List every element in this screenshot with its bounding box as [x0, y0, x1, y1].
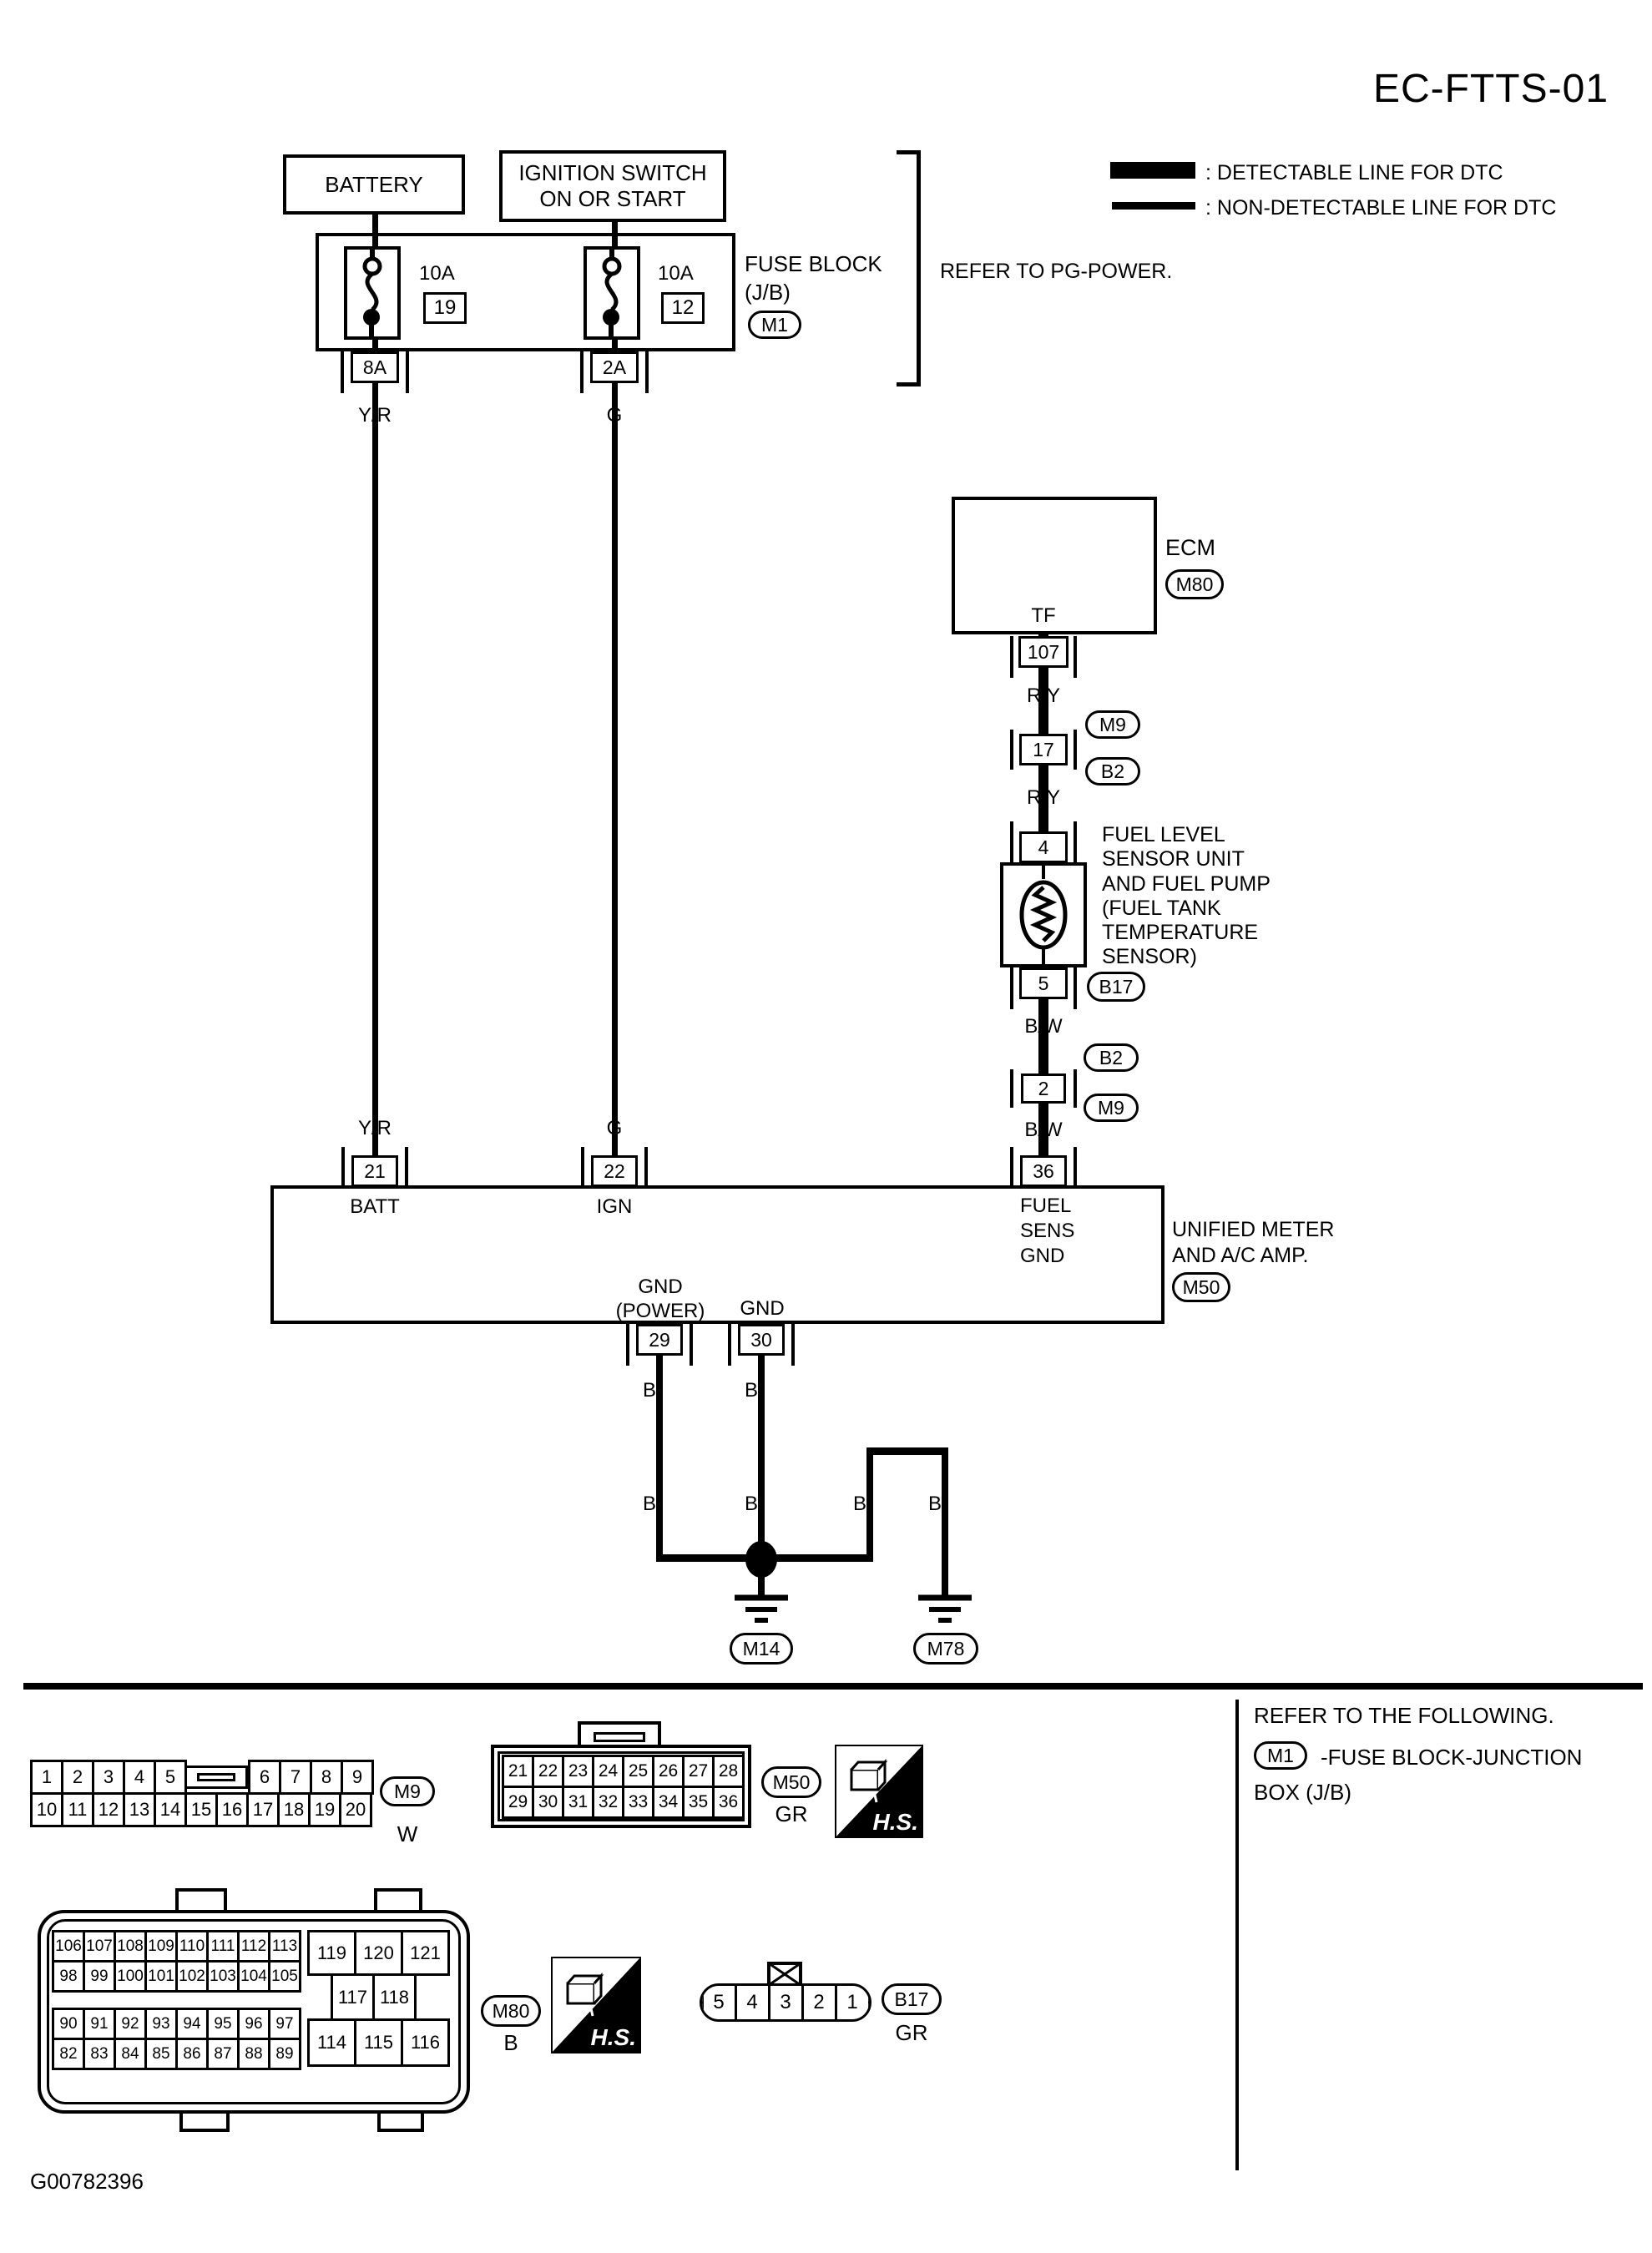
terminal-21-pin: 21	[351, 1155, 398, 1187]
m80-pin-cell: 108	[114, 1930, 147, 1963]
m80-pin-cell: 84	[114, 2038, 147, 2070]
m9-pin-cell: 18	[277, 1792, 311, 1827]
wire-color-bw-2: B/W	[1008, 1119, 1079, 1143]
m9-pin-cell: 15	[184, 1792, 218, 1827]
m80-pin-cell: 92	[114, 2008, 147, 2040]
m50-color-label: GR	[775, 1801, 808, 1827]
m80-pin-cell: 117	[331, 1973, 375, 2021]
m9-key-slot	[184, 1766, 248, 1789]
terminal-2a-pin: 2A	[590, 351, 639, 383]
battery-box: BATTERY	[283, 154, 465, 215]
b-label: B	[745, 1493, 758, 1517]
wire-color-g-top: G	[580, 404, 649, 428]
m80-blockA-row1: 106107108109110111112113	[52, 1930, 301, 1963]
m80-pin-cell: 82	[52, 2038, 85, 2070]
badge-b17: B17	[1087, 972, 1145, 1002]
g-label: G	[607, 1117, 623, 1141]
fuel-sensor-box	[1000, 862, 1087, 967]
m80-right-row1: 119120121	[307, 1930, 450, 1976]
terminal-4-pin: 4	[1019, 831, 1068, 863]
terminal-2-label: 2	[1038, 1078, 1049, 1100]
loop-top-wire	[866, 1447, 948, 1455]
m50-pin-cell: 24	[592, 1755, 624, 1788]
hs-label: H.S.	[591, 2024, 636, 2050]
yr-label: Y/R	[358, 404, 392, 428]
resistor-icon	[1003, 866, 1084, 964]
loop-right-wire	[942, 1447, 948, 1599]
m9-pin-cell: 20	[339, 1792, 372, 1827]
m80-pin-cell: 103	[206, 1960, 240, 1993]
m14-ground-icon	[731, 1593, 791, 1629]
m80-pin-cell: 98	[52, 1960, 85, 1993]
m9-pin-cell: 13	[123, 1792, 156, 1827]
m80-blockA-row2: 9899100101102103104105	[52, 1960, 301, 1993]
terminal-8a-label: 8A	[363, 356, 386, 379]
b-label: B	[853, 1493, 866, 1517]
m80-blockB-row1: 9091929394959697	[52, 2008, 301, 2040]
footer-m1-text: -FUSE BLOCK-JUNCTION	[1321, 1745, 1582, 1771]
m50-tab-slot	[594, 1732, 645, 1742]
terminal-30-pin: 30	[738, 1324, 785, 1356]
footer-m1-text2: BOX (J/B)	[1254, 1780, 1351, 1806]
ground-badge-m14: M14	[730, 1633, 793, 1664]
m9-view-color: W	[374, 1821, 441, 1847]
b17-badge-label: B17	[1099, 976, 1134, 998]
m50-pin-cell: 23	[562, 1755, 594, 1788]
ry-label: R/Y	[1027, 684, 1060, 709]
m9-pin-cell: 11	[61, 1792, 94, 1827]
meter-gnd-name: GND	[730, 1297, 795, 1321]
terminal-2a-label: 2A	[603, 356, 626, 379]
terminal-21-label: 21	[364, 1160, 386, 1183]
m78-badge-label: M78	[927, 1638, 965, 1660]
m80-pin-cell: 111	[206, 1930, 240, 1963]
legend-nondetectable-line-sample	[1112, 202, 1195, 210]
b-label: B	[745, 1379, 758, 1403]
m9-pin-cell: 17	[246, 1792, 280, 1827]
terminal-30-label: 30	[750, 1329, 772, 1351]
b17-pin-cell: 2	[801, 1986, 837, 2019]
ignition-switch-box: IGNITION SWITCH ON OR START	[499, 150, 726, 222]
b17-view-color: GR	[882, 2020, 942, 2046]
m80-pin-cell: 109	[144, 1930, 178, 1963]
b17-pin-cell: 5	[701, 1986, 737, 2019]
m9-color-label: W	[397, 1821, 418, 1847]
m9-pin-cell: 14	[154, 1792, 187, 1827]
fuse-19-amp: 10A	[419, 262, 455, 286]
m50-pin-cell: 36	[712, 1786, 745, 1819]
b-label-2: B	[728, 1379, 775, 1403]
legend-nondetectable-label: : NON-DETECTABLE LINE FOR DTC	[1205, 195, 1556, 220]
footer-badge-m1: M1	[1254, 1741, 1307, 1770]
m9-badge-label: M9	[1098, 1097, 1124, 1119]
m9-pin-cell: 10	[30, 1792, 63, 1827]
m9-pin-cell: 4	[123, 1760, 156, 1795]
m1-badge-label: M1	[761, 314, 788, 336]
terminal-8a-pin: 8A	[351, 351, 399, 383]
m50-pin-cell: 32	[592, 1786, 624, 1819]
footer-separator-line	[23, 1683, 1643, 1690]
battery-label: BATTERY	[325, 172, 423, 198]
fuse-icon	[587, 250, 637, 336]
m50-badge-label: M50	[773, 1771, 811, 1794]
terminal-17-label: 17	[1033, 739, 1054, 761]
m78-ground-icon	[915, 1593, 975, 1629]
fuel-sensor-label: FUEL LEVEL SENSOR UNIT AND FUEL PUMP (FU…	[1102, 823, 1271, 970]
legend-detectable-line-sample	[1110, 162, 1195, 179]
m50-pin-cell: 26	[652, 1755, 685, 1788]
m80-pin-cell: 93	[144, 2008, 178, 2040]
terminal-4-label: 4	[1038, 836, 1049, 859]
terminal-29-pin: 29	[636, 1324, 683, 1356]
fuse-19-symbol-box	[344, 246, 401, 340]
hs-icon-1: H.S.	[835, 1745, 923, 1838]
meter-fuel-sens-gnd-name: FUEL SENS GND	[1020, 1194, 1074, 1269]
b17-pin-cell: 4	[735, 1986, 770, 2019]
m9-pin-cell: 1	[30, 1760, 63, 1795]
b17-color-label: GR	[896, 2020, 928, 2046]
m80-color-label: B	[503, 2030, 518, 2056]
m50-pin-cell: 25	[622, 1755, 654, 1788]
badge-b2-upper: B2	[1085, 757, 1140, 786]
m50-view-badge: M50	[761, 1766, 821, 1798]
m50-pin-cell: 33	[622, 1786, 654, 1819]
wire-color-bw-1: B/W	[1008, 1015, 1079, 1039]
ecm-pin-name-tf: TF	[1013, 604, 1074, 629]
m80-pin-cell: 118	[372, 1973, 417, 2021]
fuse-icon	[347, 250, 397, 336]
b17-connector-outline: 54321	[700, 1983, 871, 2022]
terminal-36: 36	[1010, 1147, 1077, 1187]
m50-pin-cell: 21	[502, 1755, 534, 1788]
terminal-2a: 2A	[580, 351, 649, 393]
m80-pin-cell: 88	[237, 2038, 270, 2070]
terminal-5-pin: 5	[1019, 967, 1068, 999]
m80-pin-cell: 106	[52, 1930, 85, 1963]
b-label-3: B	[626, 1493, 673, 1517]
ignition-switch-label: IGNITION SWITCH ON OR START	[518, 160, 706, 212]
b-label: B	[643, 1493, 656, 1517]
m50-pin-cell: 34	[652, 1786, 685, 1819]
gnd-label: GND	[740, 1297, 784, 1321]
terminal-107: 107	[1010, 636, 1077, 678]
b-label-5: B	[836, 1493, 883, 1517]
fuse-block-badge-m1: M1	[748, 311, 801, 339]
m50-connector-row1: 2122232425262728	[502, 1755, 745, 1788]
m80-pin-cell: 96	[237, 2008, 270, 2040]
terminal-21: 21	[341, 1147, 408, 1187]
ecm-label: ECM	[1165, 534, 1215, 561]
m80-pin-cell: 83	[83, 2038, 116, 2070]
m80-view-color: B	[481, 2030, 541, 2056]
hs-label: H.S.	[873, 1809, 918, 1835]
ecm-badge-m80: M80	[1165, 569, 1224, 599]
terminal-22: 22	[581, 1147, 648, 1187]
yr-label: Y/R	[358, 1117, 392, 1141]
b2-badge-label: B2	[1099, 1047, 1123, 1069]
m50-pin-cell: 29	[502, 1786, 534, 1819]
m50-pin-cell: 31	[562, 1786, 594, 1819]
legend-detectable-label: : DETECTABLE LINE FOR DTC	[1205, 160, 1503, 185]
m14-badge-label: M14	[743, 1638, 781, 1660]
m80-pin-cell: 120	[354, 1930, 403, 1976]
m80-pin-cell: 86	[175, 2038, 209, 2070]
m80-pin-cell: 113	[268, 1930, 301, 1963]
b17-pin-cell: 3	[768, 1986, 804, 2019]
m80-pin-cell: 114	[307, 2018, 356, 2067]
page-title: EC-FTTS-01	[1373, 65, 1609, 114]
b-label-4: B	[728, 1493, 775, 1517]
b2-badge-label: B2	[1101, 760, 1124, 783]
m9-connector-row2: 1011121314151617181920	[30, 1792, 372, 1827]
terminal-30: 30	[728, 1324, 795, 1366]
m9-pin-cell: 3	[92, 1760, 125, 1795]
terminal-107-pin: 107	[1018, 636, 1068, 668]
m80-pin-cell: 99	[83, 1960, 116, 1993]
b17-badge-label: B17	[895, 1988, 929, 2011]
b-label-1: B	[626, 1379, 673, 1403]
footer-vertical-divider	[1235, 1700, 1239, 2170]
terminal-17: 17	[1010, 730, 1077, 770]
tf-label: TF	[1031, 604, 1055, 629]
m80-pin-cell: 85	[144, 2038, 178, 2070]
terminal-107-label: 107	[1028, 641, 1059, 664]
m9-pin-cell: 19	[308, 1792, 341, 1827]
ground-junction-dot	[745, 1541, 777, 1578]
terminal-2: 2	[1010, 1069, 1077, 1108]
refer-bracket-top-tick	[897, 150, 921, 154]
terminal-29: 29	[626, 1324, 693, 1366]
wire-color-yr-bottom: Y/R	[341, 1117, 409, 1141]
unified-meter-label: UNIFIED METER AND A/C AMP.	[1172, 1217, 1334, 1270]
b-label: B	[643, 1379, 656, 1403]
m80-badge-label: M80	[493, 2000, 530, 2023]
wire-color-ry-2: R/Y	[1008, 786, 1079, 811]
meter-gnd-power-name: GND (POWER)	[608, 1276, 713, 1324]
wire-color-g-bottom: G	[580, 1117, 649, 1141]
m80-pin-cell: 110	[175, 1930, 209, 1963]
meter-batt-name: BATT	[341, 1195, 408, 1220]
terminal-22-label: 22	[604, 1160, 625, 1183]
bw-label: B/W	[1024, 1015, 1062, 1039]
refer-pg-power-note: REFER TO PG-POWER.	[940, 259, 1172, 284]
m80-right-row2: 117118	[331, 1973, 417, 2021]
badge-m9-lower: M9	[1084, 1094, 1139, 1122]
m80-pin-cell: 101	[144, 1960, 178, 1993]
terminal-8a: 8A	[341, 351, 409, 393]
meter-badge-m50: M50	[1172, 1272, 1230, 1302]
g-label: G	[607, 404, 623, 428]
m9-pin-cell: 6	[248, 1760, 281, 1795]
m80-pin-cell: 94	[175, 2008, 209, 2040]
terminal-5-label: 5	[1038, 972, 1049, 995]
m80-pin-cell: 97	[268, 2008, 301, 2040]
fuse-12-number: 12	[661, 292, 705, 324]
badge-b2-lower: B2	[1084, 1043, 1139, 1072]
b17-view-badge: B17	[882, 1983, 942, 2015]
m9-badge-label: M9	[394, 1781, 421, 1803]
batt-label: BATT	[350, 1195, 400, 1220]
m80-pin-cell: 100	[114, 1960, 147, 1993]
gnd-power-label: GND (POWER)	[616, 1276, 705, 1324]
m9-pin-cell: 16	[215, 1792, 249, 1827]
key-slot-bar	[197, 1773, 235, 1781]
m80-pin-cell: 115	[354, 2018, 403, 2067]
refer-bracket-vertical	[917, 150, 921, 386]
m9-pin-cell: 7	[279, 1760, 312, 1795]
m80-pin-cell: 102	[175, 1960, 209, 1993]
wire-color-yr-top: Y/R	[341, 404, 409, 428]
m50-pin-cell: 27	[682, 1755, 715, 1788]
m80-blockB-row2: 8283848586878889	[52, 2038, 301, 2070]
terminal-17-pin: 17	[1019, 734, 1068, 765]
ground-badge-m78: M78	[913, 1633, 978, 1664]
b17-pin-row: 54321	[701, 1986, 871, 2019]
ry-label: R/Y	[1027, 786, 1060, 811]
m80-right-row3: 114115116	[307, 2018, 450, 2067]
terminal-2-pin: 2	[1021, 1073, 1066, 1104]
m9-pin-cell: 9	[341, 1760, 374, 1795]
m9-view-badge: M9	[380, 1776, 435, 1806]
badge-m9-upper: M9	[1085, 710, 1140, 739]
fuse-19-number-label: 19	[434, 296, 457, 320]
m80-badge-label: M80	[1176, 573, 1214, 596]
meter-ign-name: IGN	[581, 1195, 648, 1220]
m50-pin-cell: 30	[532, 1786, 564, 1819]
m9-pin-cell: 8	[310, 1760, 343, 1795]
fuse-19-number: 19	[423, 292, 467, 324]
m80-pin-cell: 90	[52, 2008, 85, 2040]
m50-pin-cell: 28	[712, 1755, 745, 1788]
m80-pin-cell: 105	[268, 1960, 301, 1993]
m9-connector-row1: 12345 6789	[30, 1760, 374, 1795]
m50-pin-cell: 35	[682, 1786, 715, 1819]
m9-pin-cell: 5	[154, 1760, 187, 1795]
refer-bracket-bottom-tick	[897, 382, 921, 386]
m80-pin-cell: 91	[83, 2008, 116, 2040]
m50-view-color: GR	[761, 1801, 821, 1827]
fuse-block-label: FUSE BLOCK (J/B)	[745, 250, 882, 307]
document-id: G00782396	[30, 2169, 144, 2195]
m80-pin-cell: 95	[206, 2008, 240, 2040]
terminal-22-pin: 22	[591, 1155, 638, 1187]
fuse-12-number-label: 12	[672, 296, 695, 320]
fuse-12-symbol-box	[584, 246, 640, 340]
m9-pin-cell: 2	[61, 1760, 94, 1795]
ign-label: IGN	[597, 1195, 633, 1220]
m50-pin-cell: 22	[532, 1755, 564, 1788]
footer-refer-text: REFER TO THE FOLLOWING.	[1254, 1703, 1554, 1729]
m80-pin-cell: 112	[237, 1930, 270, 1963]
terminal-36-pin: 36	[1020, 1155, 1067, 1187]
m9-pin-cell: 12	[92, 1792, 125, 1827]
fuse-12-amp: 10A	[658, 262, 694, 286]
m1-badge-label: M1	[1267, 1745, 1294, 1767]
terminal-36-label: 36	[1033, 1160, 1054, 1183]
wiring-diagram-page: EC-FTTS-01 : DETECTABLE LINE FOR DTC : N…	[0, 0, 1652, 2253]
wire-color-ry-1: R/Y	[1008, 684, 1079, 709]
m80-view-badge: M80	[481, 1995, 541, 2027]
m80-pin-cell: 119	[307, 1930, 356, 1976]
m80-pin-cell: 87	[206, 2038, 240, 2070]
b17-pin-cell: 1	[835, 1986, 871, 2019]
m9-badge-label: M9	[1099, 714, 1126, 736]
m80-pin-cell: 107	[83, 1930, 116, 1963]
b-label-6: B	[912, 1493, 958, 1517]
m80-pin-cell: 104	[237, 1960, 270, 1993]
m80-pin-cell: 89	[268, 2038, 301, 2070]
m50-badge-label: M50	[1183, 1276, 1220, 1299]
terminal-4: 4	[1010, 821, 1077, 863]
m50-connector-row2: 2930313233343536	[502, 1786, 745, 1819]
terminal-29-label: 29	[649, 1329, 670, 1351]
m80-pin-cell: 121	[401, 1930, 450, 1976]
m80-pin-cell: 116	[401, 2018, 450, 2067]
hs-icon-2: H.S.	[551, 1957, 641, 2053]
b-label: B	[928, 1493, 942, 1517]
bw-label: B/W	[1024, 1119, 1062, 1143]
terminal-5: 5	[1010, 967, 1077, 1009]
